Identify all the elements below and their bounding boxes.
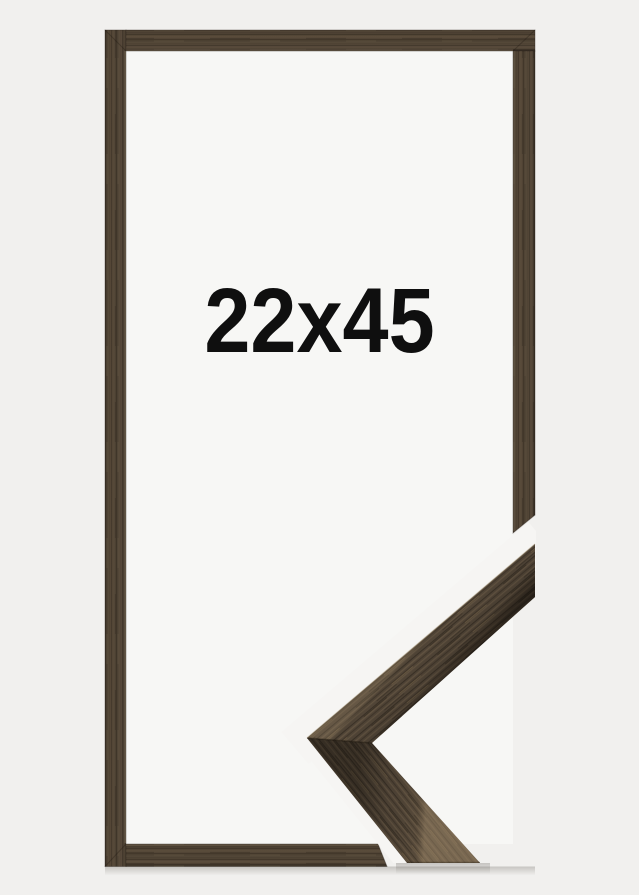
frame-graphic xyxy=(0,0,639,895)
frame-product-image: 22x45 xyxy=(0,0,639,895)
size-label: 22x45 xyxy=(32,277,607,366)
closeup-shadow xyxy=(396,863,490,874)
